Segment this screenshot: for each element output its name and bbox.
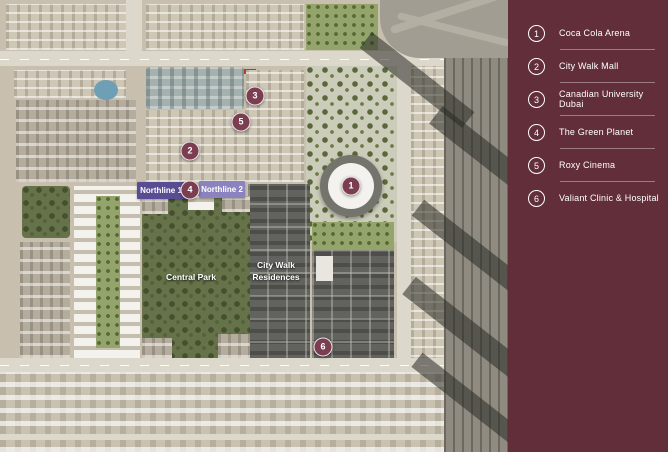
legend-item-label: City Walk Mall — [559, 61, 618, 71]
legend-item-label: Valiant Clinic & Hospital — [559, 193, 659, 203]
buildings-top-center — [146, 4, 304, 50]
legend-item-label: Roxy Cinema — [559, 160, 615, 170]
villa-district — [0, 372, 446, 452]
northline1-label-chip: Northline 1 — [137, 182, 185, 199]
courtyard-greenery — [96, 196, 120, 348]
apartments-mid-left — [16, 100, 136, 182]
park-corner-building — [142, 338, 172, 358]
park-corner-building — [218, 334, 250, 358]
apartments-lower-left — [20, 242, 70, 358]
city-walk-residences-label-line2: Residences — [252, 271, 299, 283]
legend-item-roxy-cinema: 5 Roxy Cinema — [508, 149, 668, 181]
map-marker-6: 6 — [314, 338, 333, 357]
legend-item-label: Coca Cola Arena — [559, 28, 630, 38]
road-vertical-top — [126, 0, 142, 52]
map-marker-3: 3 — [246, 87, 265, 106]
map-marker-4: 4 — [181, 181, 200, 200]
legend-number-badge: 1 — [528, 25, 545, 42]
legend-item-city-walk-mall: 2 City Walk Mall — [508, 50, 668, 82]
legend-item-label: The Green Planet — [559, 127, 633, 137]
pond — [94, 80, 118, 100]
legend-number-badge: 3 — [528, 91, 545, 108]
park-corner-building — [222, 196, 250, 212]
legend-number-badge: 2 — [528, 58, 545, 75]
road-vertical-mid — [397, 52, 411, 372]
location-map-graphic: Northline 1 Northline 2 Central Park Cit… — [0, 0, 668, 452]
road-horizontal-lower — [0, 358, 446, 372]
tree-square — [22, 186, 70, 238]
city-walk-mall-roofs — [146, 67, 244, 109]
central-park-label: Central Park — [166, 271, 216, 283]
legend-number-badge: 4 — [528, 124, 545, 141]
buildings-top-left — [6, 4, 126, 50]
legend-item-coca-cola-arena: 1 Coca Cola Arena — [508, 17, 668, 49]
legend-item-canadian-university: 3 Canadian University Dubai — [508, 83, 668, 115]
northline2-label-chip: Northline 2 — [199, 181, 245, 198]
white-plaza — [316, 256, 333, 281]
legend-panel: 1 Coca Cola Arena 2 City Walk Mall 3 Can… — [508, 0, 668, 452]
city-walk-residences-label-line1: City Walk — [252, 259, 299, 271]
legend-number-badge: 6 — [528, 190, 545, 207]
legend-item-green-planet: 4 The Green Planet — [508, 116, 668, 148]
satellite-map: Northline 1 Northline 2 Central Park Cit… — [0, 0, 508, 452]
city-walk-residences-label: City Walk Residences — [252, 259, 299, 283]
legend-item-label: Canadian University Dubai — [559, 89, 668, 109]
legend-item-valiant-clinic: 6 Valiant Clinic & Hospital — [508, 182, 668, 214]
legend-number-badge: 5 — [528, 157, 545, 174]
map-marker-1: 1 — [342, 177, 361, 196]
map-marker-2: 2 — [181, 142, 200, 161]
road-villas — [0, 434, 446, 440]
map-marker-5: 5 — [232, 113, 251, 132]
garden-strip — [312, 222, 394, 250]
